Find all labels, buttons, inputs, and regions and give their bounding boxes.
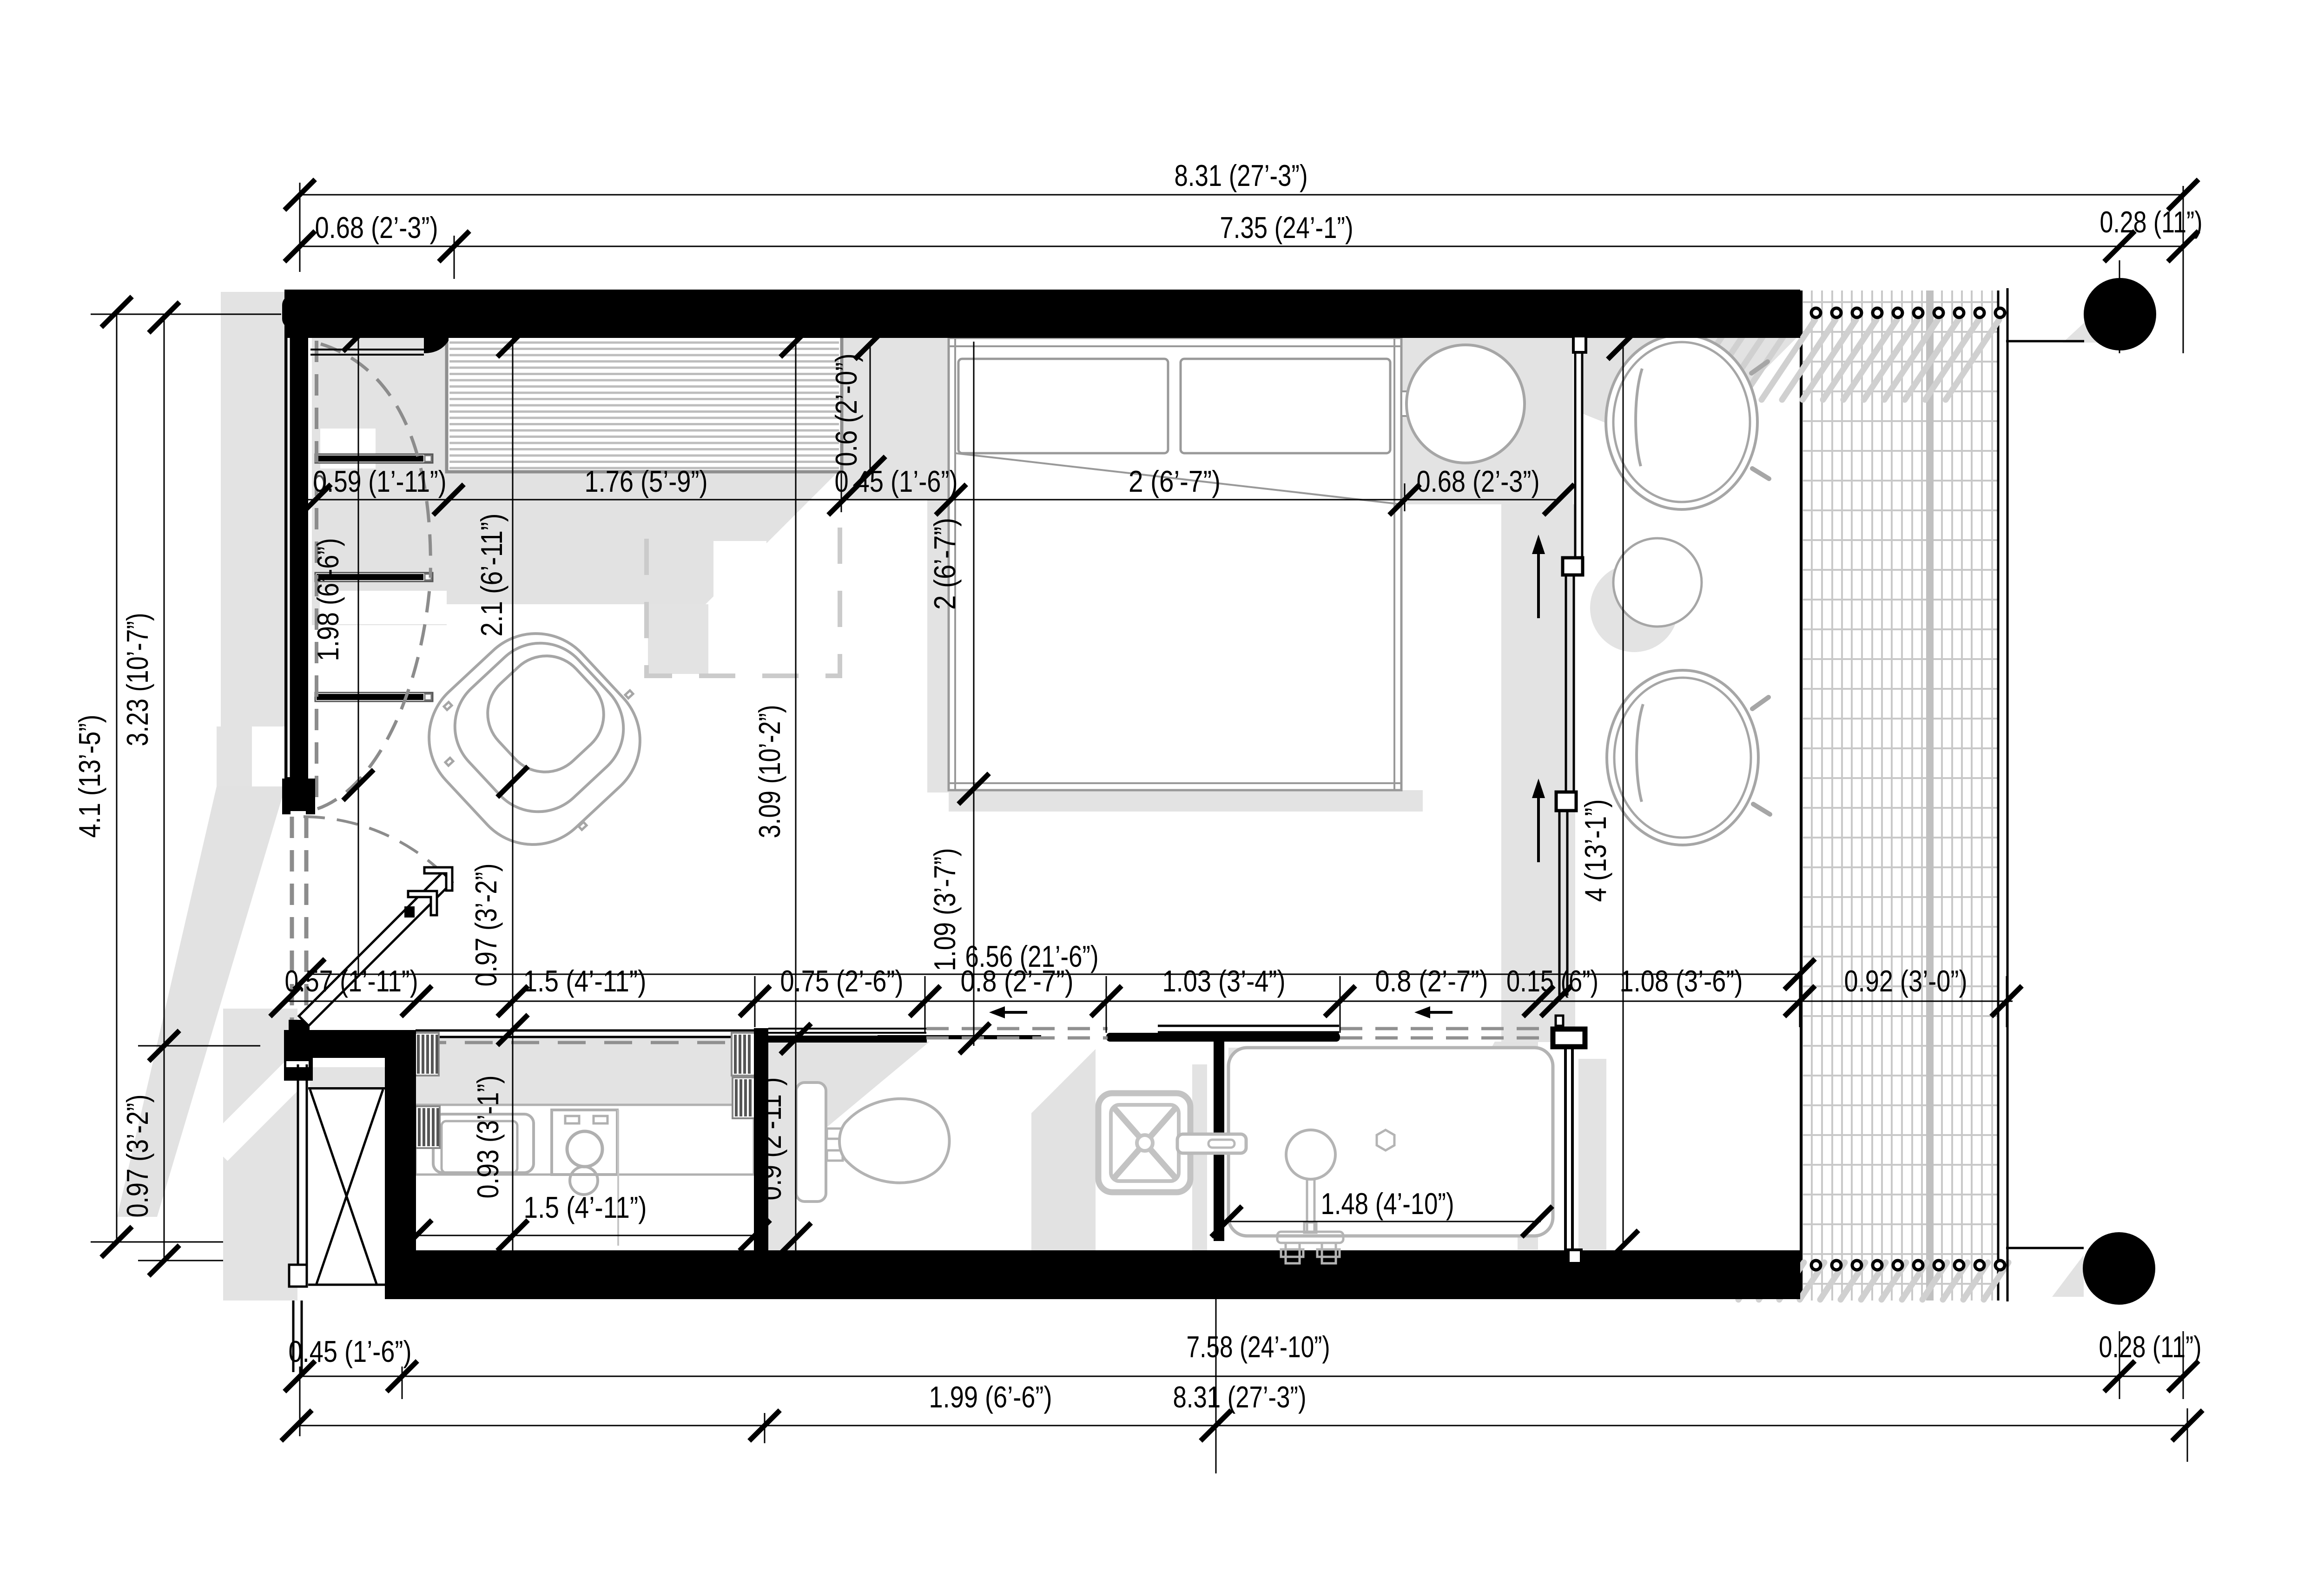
svg-text:7.35 (24’-1”): 7.35 (24’-1”) [1220, 211, 1353, 244]
svg-text:0.8 (2’-7”): 0.8 (2’-7”) [1375, 964, 1488, 998]
svg-text:0.8 (2’-7”): 0.8 (2’-7”) [961, 964, 1074, 998]
svg-text:1.08 (3’-6”): 1.08 (3’-6”) [1620, 964, 1743, 998]
svg-text:0.15 (6”): 0.15 (6”) [1506, 964, 1598, 998]
svg-text:0.93 (3’-1”): 0.93 (3’-1”) [471, 1076, 505, 1199]
svg-text:4 (13’-1”): 4 (13’-1”) [1578, 799, 1612, 902]
svg-text:1.09 (3’-7”): 1.09 (3’-7”) [928, 848, 962, 971]
svg-text:0.9 (2’-11”): 0.9 (2’-11”) [753, 1077, 787, 1201]
svg-text:0.97 (3’-2”): 0.97 (3’-2”) [120, 1095, 154, 1218]
svg-text:2 (6’-7”): 2 (6’-7”) [928, 518, 962, 610]
svg-text:1.03 (3’-4”): 1.03 (3’-4”) [1162, 964, 1286, 998]
svg-text:0.59 (1’-11”): 0.59 (1’-11”) [313, 464, 447, 498]
svg-text:0.57 (1’-11”): 0.57 (1’-11”) [285, 964, 418, 998]
svg-text:4.1 (13’-5”): 4.1 (13’-5”) [73, 715, 106, 838]
svg-text:8.31 (27’-3”): 8.31 (27’-3”) [1173, 1380, 1307, 1414]
svg-text:0.75 (2’-6”): 0.75 (2’-6”) [780, 964, 904, 998]
svg-text:8.31 (27’-3”): 8.31 (27’-3”) [1175, 158, 1308, 192]
svg-text:0.68 (2’-3”): 0.68 (2’-3”) [315, 211, 438, 244]
svg-text:1.76 (5’-9”): 1.76 (5’-9”) [585, 464, 708, 498]
svg-text:1.98 (6’-6”): 1.98 (6’-6”) [311, 538, 345, 661]
svg-text:0.68 (2’-3”): 0.68 (2’-3”) [1417, 464, 1540, 498]
svg-text:2 (6’-7”): 2 (6’-7”) [1129, 464, 1221, 498]
svg-text:2.1 (6’-11”): 2.1 (6’-11”) [475, 514, 508, 637]
svg-text:7.58 (24’-10”): 7.58 (24’-10”) [1187, 1330, 1330, 1364]
svg-text:0.28 (11”): 0.28 (11”) [2099, 1330, 2202, 1364]
svg-text:0.97 (3’-2”): 0.97 (3’-2”) [469, 864, 503, 987]
svg-text:1.5 (4’-11”): 1.5 (4’-11”) [523, 964, 647, 998]
svg-text:1.99 (6’-6”): 1.99 (6’-6”) [929, 1380, 1052, 1414]
svg-text:3.09 (10’-2”): 3.09 (10’-2”) [753, 705, 786, 839]
svg-text:0.6 (2’-0”): 0.6 (2’-0”) [829, 354, 863, 467]
svg-text:1.48 (4’-10”): 1.48 (4’-10”) [1321, 1187, 1454, 1221]
svg-text:0.28 (11”): 0.28 (11”) [2100, 205, 2203, 239]
svg-text:0.92 (3’-0”): 0.92 (3’-0”) [1844, 964, 1967, 998]
svg-text:3.23 (10’-7”): 3.23 (10’-7”) [120, 613, 154, 746]
svg-text:0.45 (1’-6”): 0.45 (1’-6”) [835, 464, 958, 498]
svg-text:0.45 (1’-6”): 0.45 (1’-6”) [289, 1334, 412, 1368]
svg-text:1.5 (4’-11”): 1.5 (4’-11”) [524, 1190, 647, 1224]
